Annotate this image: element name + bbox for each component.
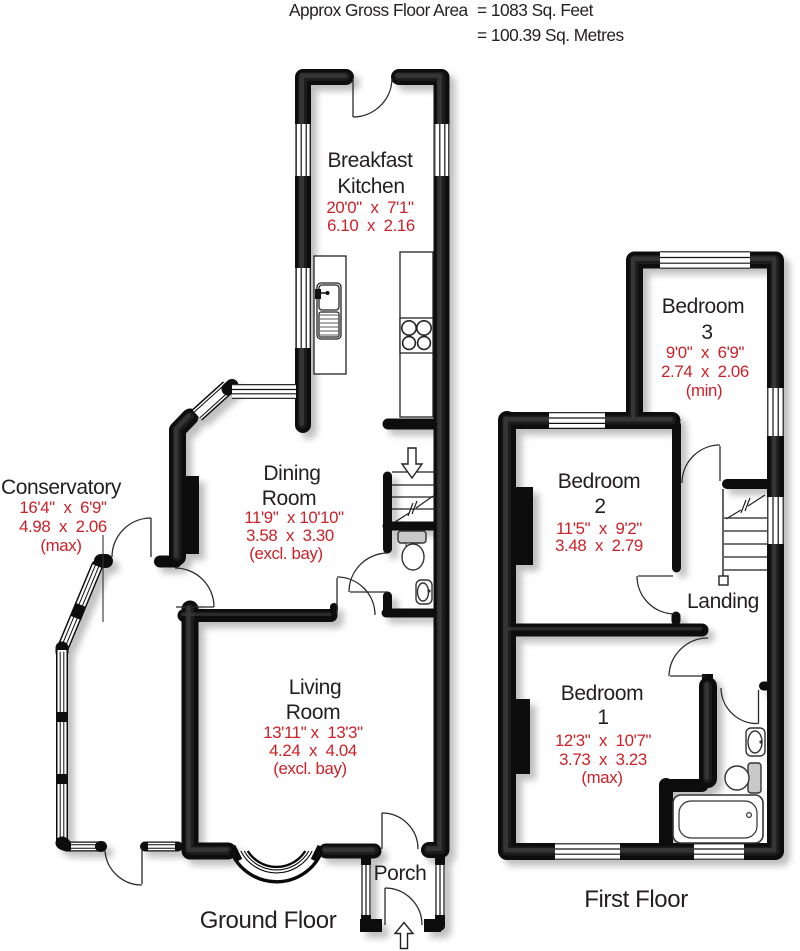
svg-text:Ground Floor: Ground Floor xyxy=(200,907,337,934)
svg-text:1: 1 xyxy=(597,706,608,729)
svg-text:4.24 x 4.04: 4.24 x 4.04 xyxy=(269,741,357,760)
svg-text:(excl. bay): (excl. bay) xyxy=(249,544,323,563)
svg-text:Breakfast: Breakfast xyxy=(327,149,413,172)
svg-text:6.10 x 2.16: 6.10 x 2.16 xyxy=(327,216,415,235)
svg-text:Living: Living xyxy=(289,676,341,699)
svg-text:2.74 x 2.06: 2.74 x 2.06 xyxy=(661,362,749,381)
svg-text:12'3" x 10'7": 12'3" x 10'7" xyxy=(555,731,652,750)
svg-text:11'9" x 10'10": 11'9" x 10'10" xyxy=(244,508,344,527)
svg-text:Room: Room xyxy=(286,701,340,724)
svg-text:(min): (min) xyxy=(686,381,722,400)
svg-text:Porch: Porch xyxy=(374,862,427,885)
svg-text:Approx Gross Floor Area: Approx Gross Floor Area xyxy=(289,0,469,20)
svg-text:(excl. bay): (excl. bay) xyxy=(273,759,347,778)
svg-text:2: 2 xyxy=(594,495,605,518)
svg-text:3: 3 xyxy=(701,321,712,344)
svg-text:3.73 x 3.23: 3.73 x 3.23 xyxy=(559,750,647,769)
svg-text:Kitchen: Kitchen xyxy=(337,175,404,198)
svg-text:20'0" x 7'1": 20'0" x 7'1" xyxy=(326,198,414,217)
svg-text:Bedroom: Bedroom xyxy=(558,470,640,493)
svg-text:13'11" x 13'3": 13'11" x 13'3" xyxy=(263,723,363,742)
svg-text:(max): (max) xyxy=(581,768,622,787)
svg-text:Landing: Landing xyxy=(687,590,759,613)
svg-text:4.98 x 2.06: 4.98 x 2.06 xyxy=(19,517,107,536)
svg-text:16'4" x 6'9": 16'4" x 6'9" xyxy=(19,498,107,517)
svg-text:Bedroom: Bedroom xyxy=(662,295,744,318)
svg-text:= 100.39 Sq. Metres: = 100.39 Sq. Metres xyxy=(477,25,624,45)
svg-text:(max): (max) xyxy=(40,536,81,555)
svg-text:= 1083 Sq. Feet: = 1083 Sq. Feet xyxy=(477,0,594,20)
svg-text:Conservatory: Conservatory xyxy=(1,476,122,499)
svg-text:First Floor: First Floor xyxy=(584,886,688,913)
svg-text:Room: Room xyxy=(262,487,316,510)
svg-text:Bedroom: Bedroom xyxy=(561,682,643,705)
svg-text:9'0" x 6'9": 9'0" x 6'9" xyxy=(666,343,745,362)
svg-text:Dining: Dining xyxy=(263,462,320,485)
svg-text:3.48 x 2.79: 3.48 x 2.79 xyxy=(555,536,643,555)
svg-text:3.58 x 3.30: 3.58 x 3.30 xyxy=(246,526,334,545)
